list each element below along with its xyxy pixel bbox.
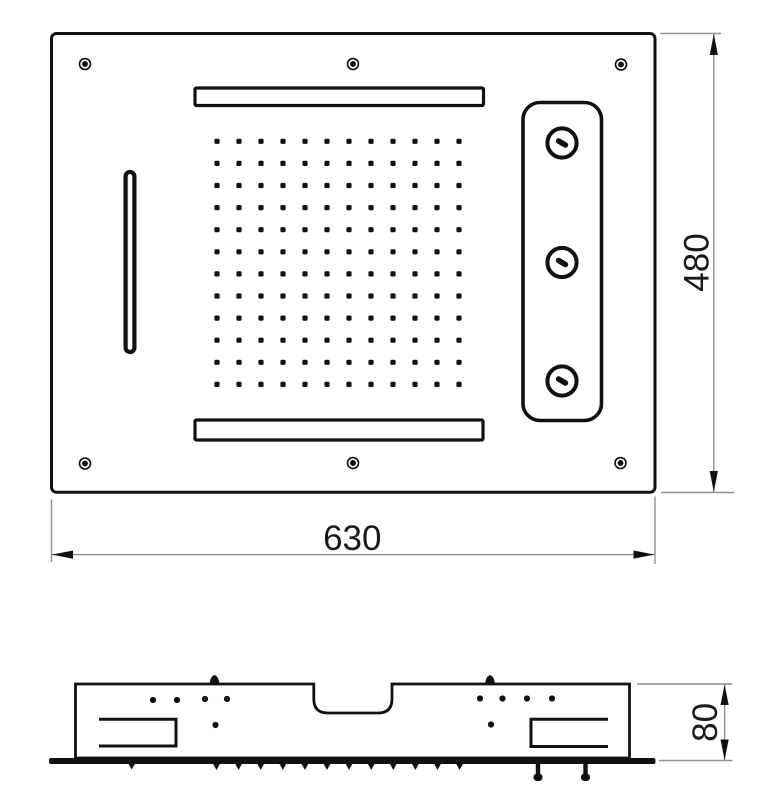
svg-text:80: 80 <box>686 703 725 742</box>
svg-text:630: 630 <box>323 519 381 558</box>
svg-text:480: 480 <box>678 233 717 291</box>
